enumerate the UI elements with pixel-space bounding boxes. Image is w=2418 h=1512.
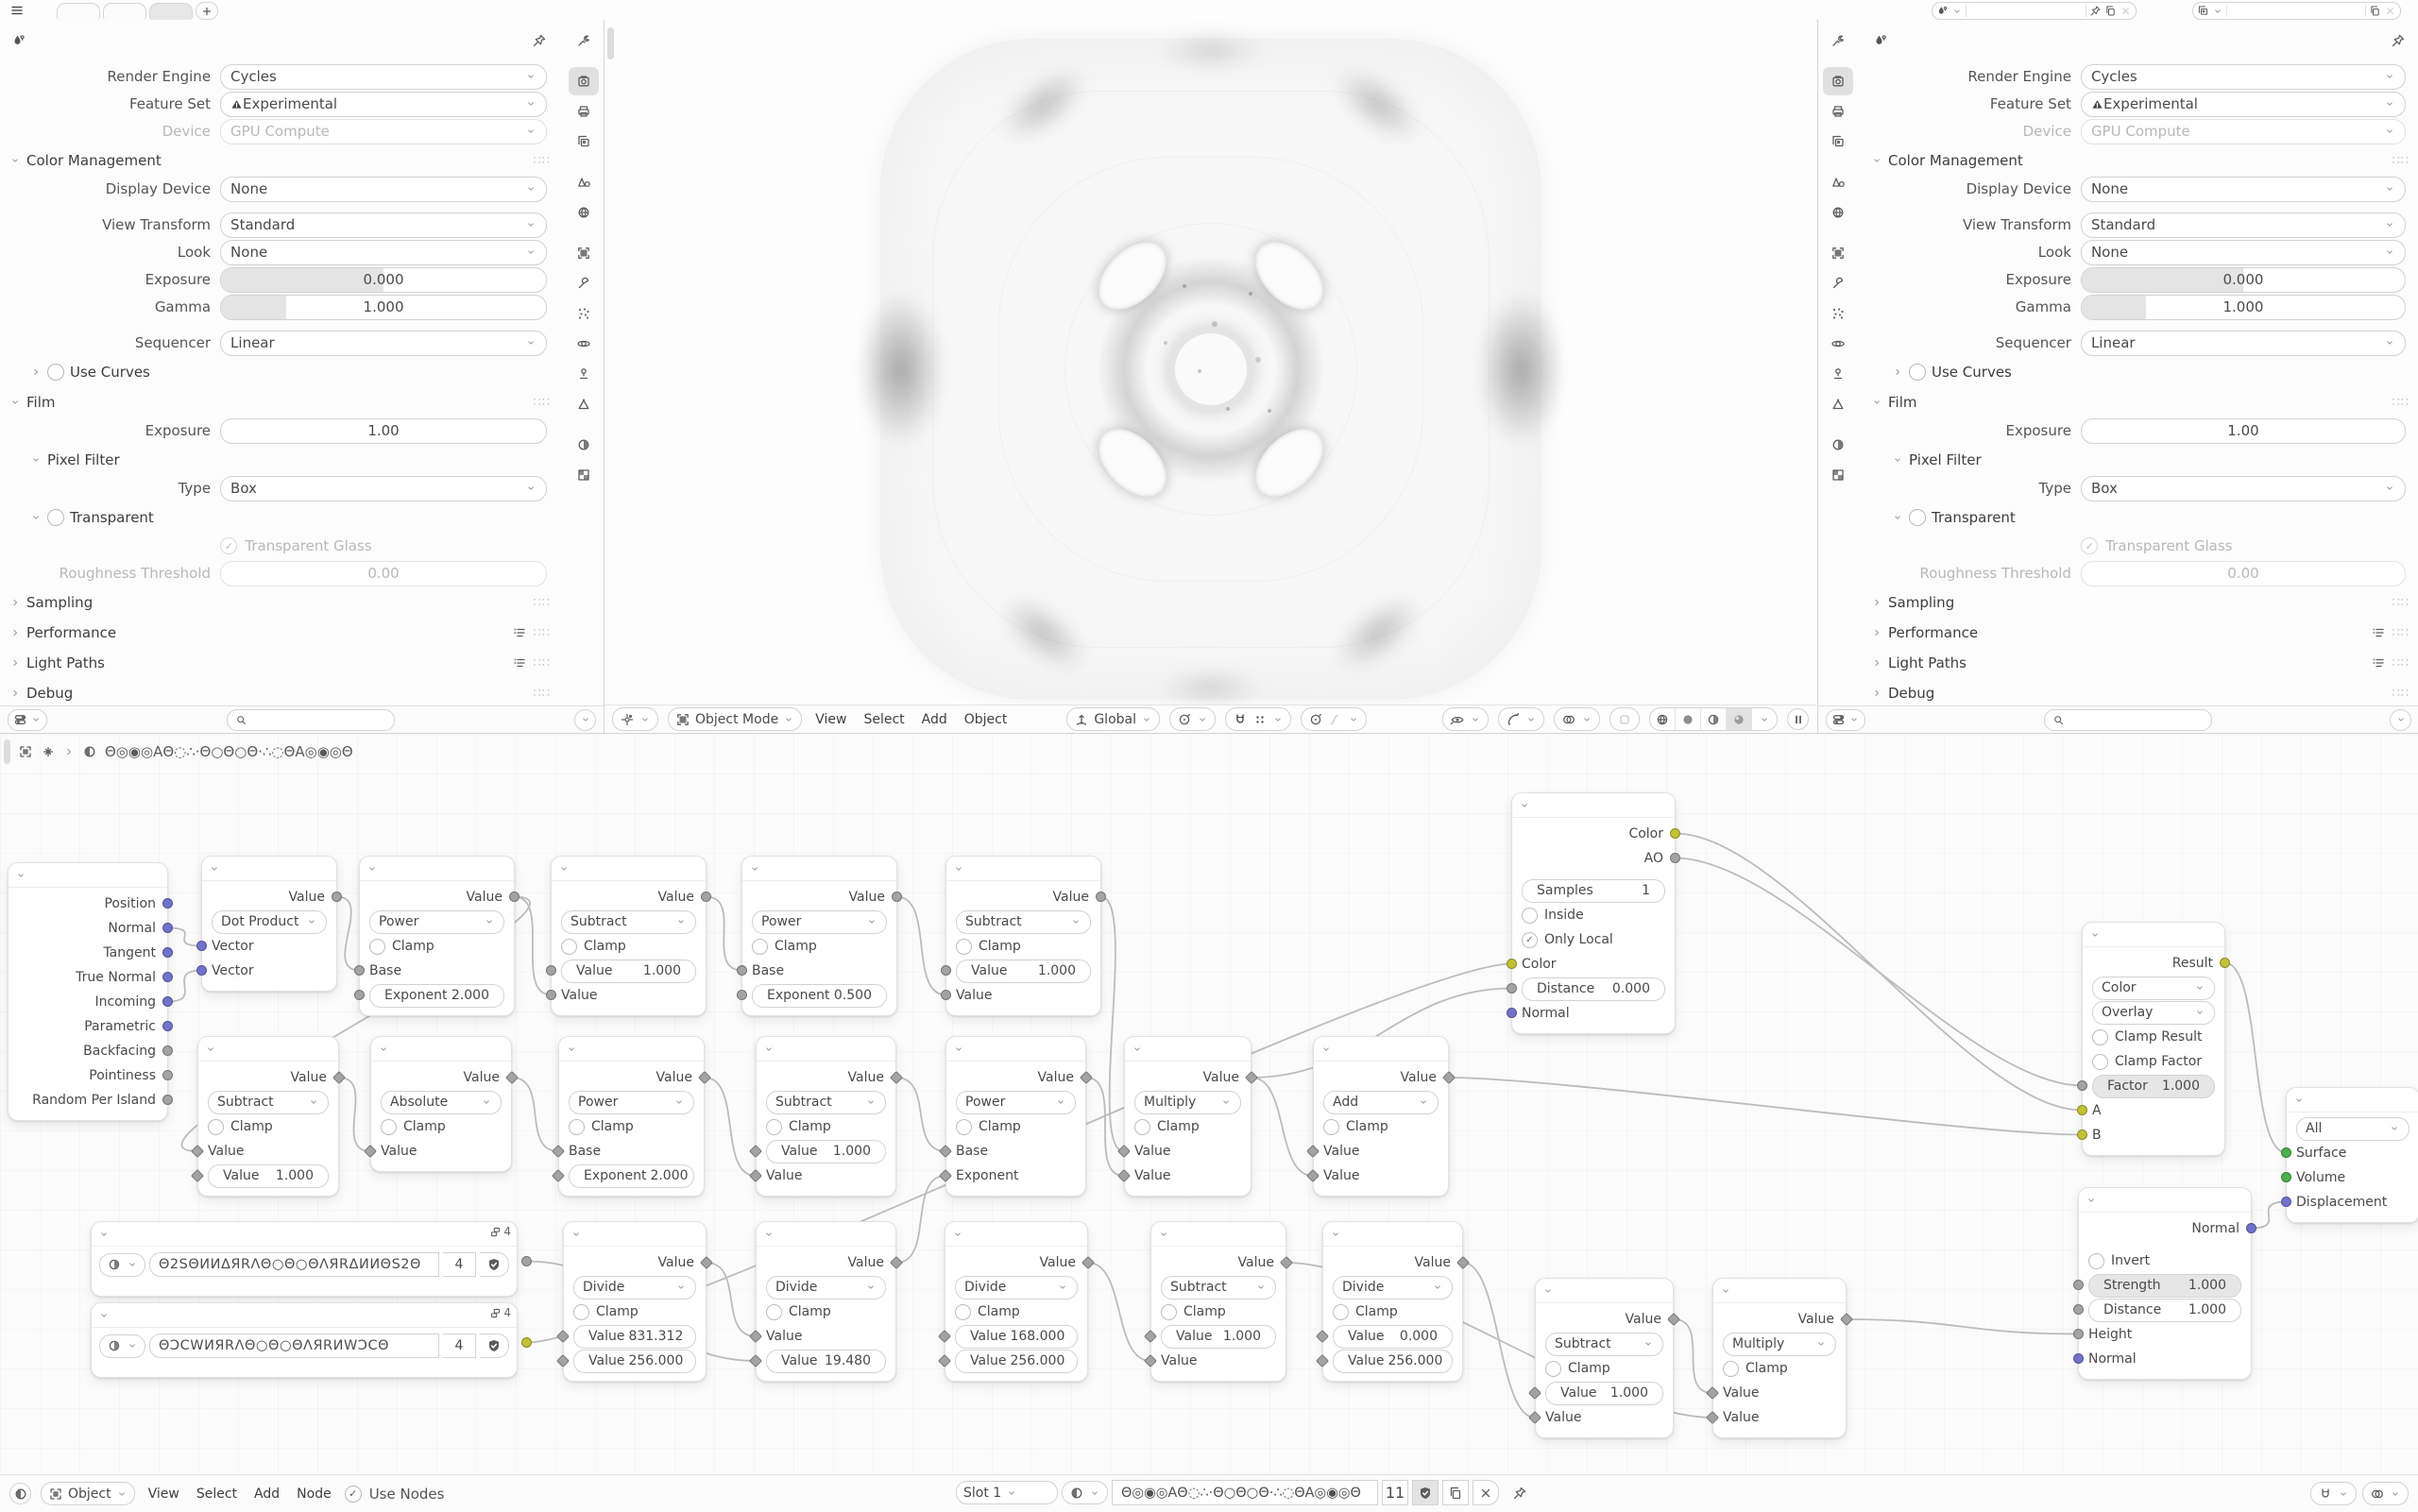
socket[interactable] (556, 1330, 570, 1343)
add-workspace-button[interactable] (196, 2, 218, 20)
socket[interactable] (1667, 1313, 1680, 1326)
view-transform-field[interactable]: Standard (220, 212, 547, 238)
socket[interactable] (552, 1169, 565, 1182)
overlays-dropdown[interactable] (2362, 1482, 2409, 1505)
checkbox-use-curves[interactable] (1909, 364, 1926, 381)
node-pow1[interactable]: ValuePowerClampBaseExponent2.000 (359, 856, 515, 1016)
properties-tab-modifiers[interactable] (569, 269, 599, 297)
node-header[interactable] (564, 1222, 706, 1247)
properties-tab-constraints[interactable] (1823, 360, 1853, 388)
node-header[interactable] (552, 857, 706, 881)
socket[interactable] (939, 1145, 952, 1158)
close-icon[interactable] (2120, 5, 2132, 17)
fake-user-button[interactable] (480, 1252, 509, 1277)
checkbox-clamp[interactable] (369, 939, 385, 955)
value-field[interactable]: Factor1.000 (2092, 1075, 2215, 1098)
mode-dropdown[interactable]: Object Mode (668, 707, 802, 731)
xray-toggle[interactable] (1609, 707, 1640, 731)
checkbox-use-curves[interactable] (47, 364, 64, 381)
properties-search[interactable] (227, 709, 395, 731)
node-header[interactable] (757, 1037, 895, 1062)
node-canvas[interactable]: PositionNormalTangentTrue NormalIncoming… (0, 734, 2418, 1474)
properties-tab-viewlayer[interactable] (569, 127, 599, 156)
value-field[interactable]: Strength1.000 (2088, 1274, 2241, 1298)
section-color-management[interactable]: Color Management∷∷ (9, 147, 551, 174)
shading-matprev[interactable] (1701, 708, 1727, 730)
texture-name-field[interactable]: ΘƆCWИЯRΛΘ○Θ○ΘΛЯRИWƆCΘ (149, 1334, 439, 1358)
socket[interactable] (2281, 1172, 2291, 1182)
node-header[interactable] (2287, 1088, 2418, 1113)
operation-dropdown[interactable]: All (2296, 1117, 2409, 1141)
section-sampling[interactable]: Sampling∷∷ (1871, 589, 2409, 616)
node-div4[interactable]: ValueDivideClampValue0.000Value256.000 (1322, 1221, 1463, 1382)
properties-tab-output[interactable] (1823, 97, 1853, 126)
socket[interactable] (162, 1021, 173, 1031)
checkbox-invert[interactable] (2088, 1253, 2104, 1269)
view-layer-selector[interactable] (2192, 2, 2401, 20)
checkbox-clamp-factor[interactable] (2092, 1054, 2108, 1070)
viewport-menu-view[interactable]: View (811, 712, 850, 727)
properties-tab-scene[interactable] (569, 168, 599, 196)
orientation-dropdown[interactable]: Global (1066, 707, 1160, 731)
shading-rendered[interactable] (1727, 708, 1752, 730)
scene-name-field[interactable] (1966, 5, 2086, 17)
look-field[interactable]: None (2081, 240, 2406, 265)
properties-search[interactable] (2044, 709, 2212, 731)
checkbox-transparent[interactable] (47, 509, 64, 526)
properties-tab-constraints[interactable] (569, 360, 599, 388)
node-sub2b[interactable]: ValueSubtractClampValue1.000Value (756, 1036, 896, 1197)
viewport-menu-select[interactable]: Select (860, 712, 908, 727)
fake-user-button[interactable] (480, 1334, 509, 1358)
node-header[interactable] (2083, 923, 2224, 947)
node-dot[interactable]: ValueDot ProductVectorVector (201, 856, 337, 992)
socket[interactable] (196, 941, 207, 951)
socket[interactable] (1144, 1354, 1157, 1368)
properties-tab-viewlayer[interactable] (1823, 127, 1853, 156)
operation-dropdown[interactable]: Dot Product (212, 910, 327, 934)
node-outn[interactable]: AllSurfaceVolumeDisplacement (2286, 1087, 2418, 1223)
socket[interactable] (941, 990, 951, 1000)
section-pixel-filter[interactable]: Pixel Filter (30, 447, 551, 473)
properties-tab-physics[interactable] (569, 330, 599, 358)
socket[interactable] (364, 1145, 377, 1158)
socket[interactable] (939, 1169, 952, 1182)
socket[interactable] (354, 990, 365, 1000)
socket[interactable] (332, 1071, 346, 1084)
value-field[interactable]: Distance1.000 (2088, 1299, 2241, 1322)
properties-tab-objdata[interactable] (569, 390, 599, 418)
value-field[interactable]: Value1.000 (956, 960, 1091, 983)
editor-type-button[interactable] (8, 709, 47, 731)
checkbox-clamp[interactable] (1134, 1119, 1150, 1135)
workspace-tab[interactable] (57, 3, 100, 20)
socket[interactable] (162, 923, 173, 933)
node-header[interactable] (946, 857, 1100, 881)
socket[interactable] (749, 1330, 762, 1343)
operation-dropdown[interactable]: Power (752, 910, 887, 934)
properties-tab-material[interactable] (1823, 431, 1853, 459)
socket[interactable] (1096, 892, 1106, 902)
sequencer-field[interactable]: Linear (2081, 331, 2406, 356)
socket[interactable] (938, 1354, 951, 1368)
node-div3[interactable]: ValueDivideClampValue168.000Value256.000 (945, 1221, 1088, 1382)
node-pow2b[interactable]: ValuePowerClampBaseExponent2.000 (558, 1036, 705, 1197)
socket[interactable] (546, 990, 556, 1000)
node-header[interactable] (202, 857, 336, 881)
section-transparent[interactable]: Transparent (1892, 504, 2409, 531)
node-pow3[interactable]: ValuePowerClampBaseExponent (945, 1036, 1086, 1197)
node-menu-select[interactable]: Select (193, 1487, 241, 1502)
socket[interactable] (2073, 1353, 2084, 1364)
material-name-field[interactable]: Θ◎◉◎AΘ◌∴·Θ○Θ○Θ·∴◌ΘA◎◉◎Θ (1112, 1480, 1378, 1505)
operation-dropdown[interactable]: Subtract (956, 910, 1091, 934)
checkbox-clamp[interactable] (752, 939, 768, 955)
node-mul1[interactable]: ValueMultiplyClampValueValue (1124, 1036, 1252, 1197)
socket[interactable] (556, 1354, 570, 1368)
node-header[interactable] (2079, 1188, 2251, 1213)
operation-dropdown[interactable]: Add (1323, 1091, 1439, 1114)
operation-dropdown[interactable]: Divide (573, 1276, 696, 1300)
checkbox-clamp[interactable] (766, 1304, 782, 1320)
gizmo-dropdown[interactable] (1498, 707, 1544, 731)
node-header[interactable] (757, 1222, 895, 1247)
checkbox-transparent[interactable] (1909, 509, 1926, 526)
pin-icon[interactable] (2089, 5, 2102, 17)
checkbox-clamp[interactable] (956, 1119, 972, 1135)
value-field[interactable]: Value256.000 (955, 1350, 1078, 1373)
value-field[interactable]: Value831.312 (573, 1325, 696, 1349)
shading-solid[interactable] (1676, 708, 1701, 730)
checkbox-clamp[interactable] (956, 939, 972, 955)
node-abs1[interactable]: ValueAbsoluteClampValue (370, 1036, 512, 1172)
section-pixel-filter[interactable]: Pixel Filter (1892, 447, 2409, 473)
socket[interactable] (1507, 1008, 1517, 1018)
section-film[interactable]: Film∷∷ (1871, 389, 2409, 416)
properties-tab-particles[interactable] (1823, 299, 1853, 328)
socket[interactable] (1280, 1256, 1293, 1269)
display-device-field[interactable]: None (220, 177, 547, 202)
value-field[interactable]: Value1.000 (766, 1140, 886, 1164)
value-field[interactable]: Value1.000 (1545, 1382, 1663, 1405)
properties-tab-render[interactable] (1823, 67, 1853, 95)
socket[interactable] (162, 1045, 173, 1056)
checkbox-clamp[interactable] (381, 1119, 397, 1135)
value-field[interactable]: Value19.480 (766, 1350, 886, 1373)
section-performance[interactable]: Performance∷∷ (1871, 620, 2409, 646)
operation-dropdown[interactable]: Color (2092, 977, 2215, 1000)
operation-dropdown[interactable]: Overlay (2092, 1001, 2215, 1025)
use-nodes-toggle[interactable]: ✓Use Nodes (345, 1482, 445, 1506)
snap-toggle[interactable] (1169, 707, 1216, 731)
socket[interactable] (509, 892, 519, 902)
visibility-dropdown[interactable] (1442, 707, 1489, 731)
properties-tab-modifiers[interactable] (1823, 269, 1853, 297)
node-mixn[interactable]: ResultColorOverlayClamp ResultClamp Fact… (2082, 922, 2225, 1156)
snapping-dropdown[interactable] (2310, 1482, 2357, 1505)
socket[interactable] (700, 1256, 713, 1269)
operation-dropdown[interactable]: Divide (955, 1276, 1078, 1300)
socket[interactable] (162, 1095, 173, 1105)
shading-options[interactable] (1752, 708, 1777, 730)
node-header[interactable] (1151, 1222, 1286, 1247)
socket[interactable] (749, 1354, 762, 1368)
roughness-threshold-field[interactable]: 0.00 (2081, 561, 2406, 586)
node-menu-node[interactable]: Node (293, 1487, 335, 1502)
socket[interactable] (2077, 1105, 2087, 1115)
exposure-field[interactable]: 0.000 (220, 267, 547, 293)
use-nodes-checkbox[interactable]: ✓ (345, 1486, 362, 1503)
node-pow2[interactable]: ValuePowerClampBaseExponent0.500 (741, 856, 897, 1016)
checkbox-clamp[interactable] (1323, 1119, 1339, 1135)
fake-user-button[interactable] (1412, 1480, 1439, 1505)
feature-set-field[interactable]: Experimental (220, 92, 547, 117)
editor-type-button[interactable] (9, 1483, 31, 1504)
socket[interactable] (2077, 1130, 2087, 1140)
socket[interactable] (1306, 1169, 1320, 1182)
socket[interactable] (1507, 983, 1517, 994)
checkbox-clamp[interactable] (208, 1119, 224, 1135)
socket[interactable] (1316, 1354, 1329, 1368)
value-field[interactable]: Exponent2.000 (569, 1164, 694, 1188)
socket[interactable] (162, 947, 173, 958)
section-performance[interactable]: Performance∷∷ (9, 620, 551, 646)
exposure-field[interactable]: 0.000 (2081, 267, 2406, 293)
node-bump[interactable]: NormalInvertStrength1.000Distance1.000He… (2078, 1187, 2252, 1380)
value-field[interactable]: Value1.000 (1161, 1325, 1276, 1349)
operation-dropdown[interactable]: Multiply (1134, 1091, 1241, 1114)
node-div2[interactable]: ValueDivideClampValueValue19.480 (756, 1221, 896, 1382)
socket[interactable] (1442, 1071, 1456, 1084)
socket[interactable] (2220, 958, 2230, 968)
socket[interactable] (521, 1256, 532, 1266)
node-add1[interactable]: ValueAddClampValueValue (1313, 1036, 1449, 1197)
section-film[interactable]: Film∷∷ (9, 389, 551, 416)
gamma-field[interactable]: 1.000 (2081, 295, 2406, 320)
socket[interactable] (1117, 1169, 1131, 1182)
properties-tab-object[interactable] (569, 239, 599, 267)
node-header[interactable] (371, 1037, 511, 1062)
section-color-management[interactable]: Color Management∷∷ (1871, 147, 2409, 174)
node-header[interactable] (1512, 793, 1675, 818)
socket[interactable] (1706, 1411, 1719, 1424)
section-debug[interactable]: Debug∷∷ (1871, 680, 2409, 706)
section-debug[interactable]: Debug∷∷ (9, 680, 551, 706)
section-transparent[interactable]: Transparent (30, 504, 551, 531)
roughness-threshold-field[interactable]: 0.00 (220, 561, 547, 586)
checkbox-inside[interactable] (1522, 908, 1538, 924)
node-header[interactable] (360, 857, 514, 881)
socket[interactable] (191, 1145, 204, 1158)
properties-tab-object[interactable] (1823, 239, 1853, 267)
socket[interactable] (1144, 1330, 1157, 1343)
socket[interactable] (890, 1071, 903, 1084)
active-tool-button[interactable] (612, 707, 658, 731)
feature-set-field[interactable]: Experimental (2081, 92, 2406, 117)
socket[interactable] (890, 1256, 903, 1269)
value-field[interactable]: Exponent0.500 (752, 984, 887, 1008)
3d-viewport[interactable]: Object ModeViewSelectAddObjectGlobal (604, 20, 1816, 733)
node-header[interactable] (1125, 1037, 1251, 1062)
operation-dropdown[interactable]: Multiply (1723, 1333, 1836, 1356)
texture-browse-dropdown[interactable] (99, 1253, 145, 1277)
section-use-curves[interactable]: Use Curves (30, 359, 551, 385)
socket[interactable] (1706, 1386, 1719, 1400)
checkbox-clamp[interactable] (1333, 1304, 1349, 1320)
properties-tab-scene[interactable] (1823, 168, 1853, 196)
exposure-field[interactable]: 1.00 (220, 418, 547, 444)
socket[interactable] (162, 996, 173, 1007)
operation-dropdown[interactable]: Power (569, 1091, 694, 1114)
slot-dropdown[interactable]: Slot 1 (956, 1481, 1058, 1504)
checkbox-clamp[interactable] (1723, 1361, 1739, 1377)
checkbox-clamp[interactable] (1161, 1304, 1177, 1320)
device-field[interactable]: GPU Compute (2081, 119, 2406, 144)
socket[interactable] (332, 892, 342, 902)
material-browse-dropdown[interactable] (1062, 1481, 1108, 1504)
properties-tab-render[interactable] (569, 67, 599, 95)
checkbox-transparent-glass[interactable]: ✓ (2081, 537, 2098, 554)
node-mul2[interactable]: ValueMultiplyClampValueValue (1712, 1278, 1847, 1438)
close-icon[interactable] (2384, 5, 2396, 17)
socket[interactable] (737, 990, 747, 1000)
scene-selector[interactable] (1932, 2, 2137, 20)
operation-dropdown[interactable]: Divide (1333, 1276, 1453, 1300)
checkbox-only-local[interactable]: ✓ (1522, 932, 1538, 948)
value-field[interactable]: Value256.000 (1333, 1350, 1453, 1373)
copy-icon[interactable] (2369, 5, 2381, 17)
node-header[interactable] (742, 857, 896, 881)
users-count-button[interactable]: 11 (1382, 1480, 1408, 1505)
viewport-menu-add[interactable]: Add (918, 712, 951, 727)
checkbox-clamp-result[interactable] (2092, 1029, 2108, 1045)
region-handle[interactable] (4, 739, 10, 764)
node-tex2[interactable]: 4ΘƆCWИЯRΛΘ○Θ○ΘΛЯRИWƆCΘ4 (91, 1302, 518, 1378)
operation-dropdown[interactable]: Subtract (1161, 1276, 1276, 1300)
node-menu-add[interactable]: Add (250, 1487, 283, 1502)
shading-mode-switch[interactable] (1649, 707, 1778, 731)
node-menu-view[interactable]: View (145, 1487, 183, 1502)
socket[interactable] (1117, 1145, 1131, 1158)
render-engine-field[interactable]: Cycles (220, 64, 547, 90)
display-device-field[interactable]: None (2081, 177, 2406, 202)
pin-icon[interactable] (1512, 1486, 1527, 1501)
workspace-tab[interactable] (149, 3, 193, 20)
texture-users-button[interactable]: 4 (443, 1252, 476, 1277)
properties-tab-material[interactable] (569, 431, 599, 459)
node-div1[interactable]: ValueDivideClampValue831.312Value256.000 (563, 1221, 707, 1382)
options-button[interactable] (574, 709, 596, 731)
node-header[interactable] (198, 1037, 338, 1062)
checkbox-clamp[interactable] (1545, 1361, 1561, 1377)
value-field[interactable]: Samples1 (1522, 879, 1665, 903)
unlink-button[interactable] (1473, 1480, 1499, 1505)
value-field[interactable]: Value168.000 (955, 1325, 1078, 1349)
section-light-paths[interactable]: Light Paths∷∷ (9, 650, 551, 676)
socket[interactable] (2073, 1280, 2084, 1290)
socket[interactable] (1528, 1386, 1541, 1400)
socket[interactable] (162, 972, 173, 982)
shading-wire[interactable] (1650, 708, 1676, 730)
section-use-curves[interactable]: Use Curves (1892, 359, 2409, 385)
copy-icon[interactable] (2104, 5, 2117, 17)
node-header[interactable] (9, 863, 167, 888)
properties-tab-particles[interactable] (569, 299, 599, 328)
socket[interactable] (2073, 1329, 2084, 1339)
checkbox-transparent-glass[interactable]: ✓ (220, 537, 237, 554)
node-geo[interactable]: PositionNormalTangentTrue NormalIncoming… (8, 862, 168, 1121)
checkbox-clamp[interactable] (573, 1304, 589, 1320)
options-button[interactable] (2390, 709, 2411, 731)
render-engine-field[interactable]: Cycles (2081, 64, 2406, 90)
socket[interactable] (2246, 1223, 2256, 1233)
node-sub1b[interactable]: ValueSubtractClampValueValue1.000 (197, 1036, 339, 1197)
check-transparent-glass[interactable]: ✓Transparent Glass (2081, 534, 2406, 558)
socket[interactable] (938, 1330, 951, 1343)
proportional-editing[interactable] (1301, 707, 1367, 731)
node-header[interactable]: 4 (92, 1303, 517, 1328)
operation-dropdown[interactable]: Subtract (766, 1091, 886, 1114)
value-field[interactable]: Value1.000 (561, 960, 696, 983)
view-transform-field[interactable]: Standard (2081, 212, 2406, 238)
checkbox-clamp[interactable] (766, 1119, 782, 1135)
workspace-tab[interactable] (103, 3, 146, 20)
node-header[interactable] (559, 1037, 704, 1062)
operation-dropdown[interactable]: Subtract (1545, 1333, 1663, 1356)
texture-users-button[interactable]: 4 (443, 1334, 476, 1358)
region-handle[interactable] (607, 27, 614, 59)
operation-dropdown[interactable]: Subtract (561, 910, 696, 934)
copy-material-button[interactable] (1442, 1480, 1469, 1505)
socket[interactable] (749, 1169, 762, 1182)
socket[interactable] (1507, 959, 1517, 969)
checkbox-clamp[interactable] (561, 939, 577, 955)
socket[interactable] (1456, 1256, 1470, 1269)
socket[interactable] (737, 965, 747, 976)
operation-dropdown[interactable]: Subtract (208, 1091, 329, 1114)
node-header[interactable] (945, 1222, 1087, 1247)
properties-tab-tool[interactable] (569, 26, 599, 55)
socket[interactable] (1670, 828, 1680, 839)
socket[interactable] (701, 892, 711, 902)
socket[interactable] (892, 892, 902, 902)
socket[interactable] (505, 1071, 519, 1084)
node-sub3[interactable]: ValueSubtractClampValue1.000Value (1150, 1221, 1286, 1382)
node-header[interactable] (1323, 1222, 1462, 1247)
shader-type-dropdown[interactable]: Object (41, 1482, 135, 1505)
node-header[interactable] (1713, 1279, 1846, 1303)
operation-dropdown[interactable]: Absolute (381, 1091, 502, 1114)
properties-tab-texture[interactable] (1823, 461, 1853, 489)
socket[interactable] (1316, 1330, 1329, 1343)
editor-type-button[interactable] (1826, 709, 1865, 731)
node-sub4[interactable]: ValueSubtractClampValue1.000Value (1535, 1278, 1674, 1438)
socket[interactable] (1840, 1313, 1853, 1326)
socket[interactable] (1081, 1256, 1095, 1269)
shader-node-editor[interactable]: PositionNormalTangentTrue NormalIncoming… (0, 733, 2418, 1512)
operation-dropdown[interactable]: Power (369, 910, 504, 934)
snapping-dropdown[interactable] (1225, 707, 1291, 731)
node-sub1[interactable]: ValueSubtractClampValue1.000Value (551, 856, 707, 1016)
device-field[interactable]: GPU Compute (220, 119, 547, 144)
node-sub2[interactable]: ValueSubtractClampValue1.000Value (945, 856, 1101, 1016)
pin-icon[interactable] (532, 33, 547, 48)
node-ao[interactable]: ColorAOSamples1Inside✓Only LocalColorDis… (1511, 792, 1676, 1034)
socket[interactable] (162, 898, 173, 909)
menu-icon[interactable] (9, 3, 25, 18)
sequencer-field[interactable]: Linear (220, 331, 547, 356)
look-field[interactable]: None (220, 240, 547, 265)
